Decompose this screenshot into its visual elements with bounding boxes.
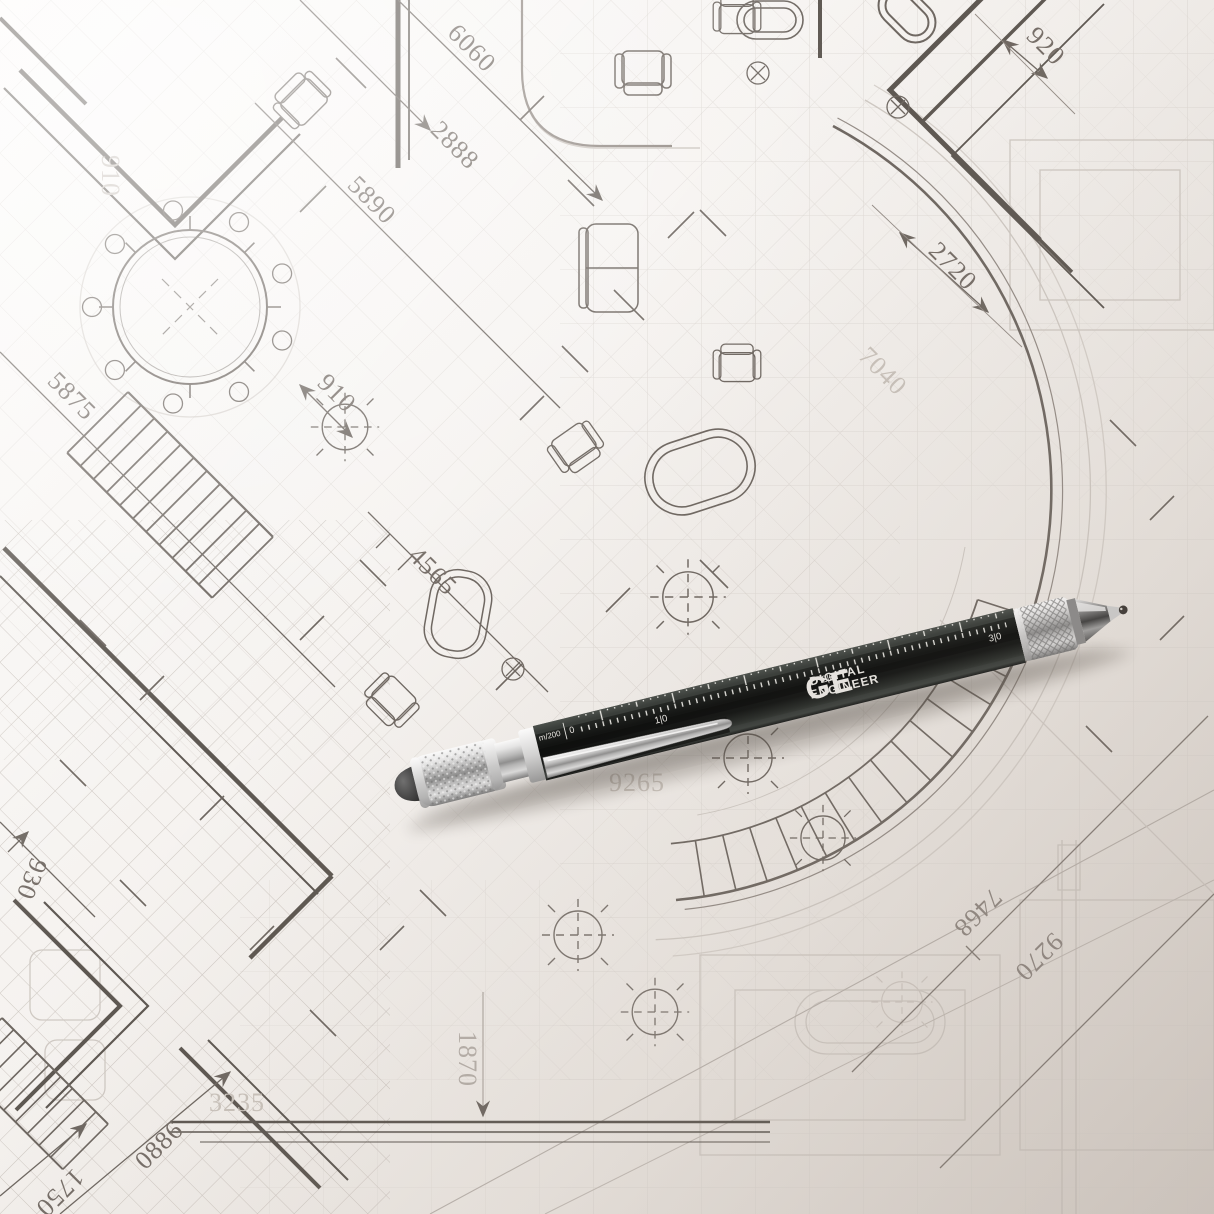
dim-label-3235-ghost: 3235	[209, 1088, 265, 1117]
blueprint-scene: 6060 2888 5890 920 2720 5875 910 4565 70…	[0, 0, 1214, 1214]
blueprint-photo: 6060 2888 5890 920 2720 5875 910 4565 70…	[0, 0, 1214, 1214]
dim-label-1870: 1870	[453, 1031, 482, 1087]
dim-label-910-ghost: 910	[96, 155, 125, 197]
